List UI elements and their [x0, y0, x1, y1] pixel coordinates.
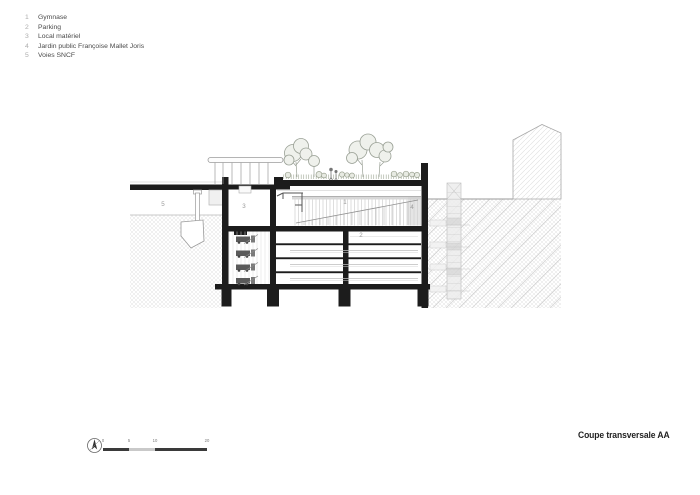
scale-tick: 0 [102, 438, 104, 443]
label-gymnase: 1 [343, 199, 347, 206]
label-parking: 2 [359, 232, 363, 239]
section-drawing: 5 3 1 4 2 [0, 0, 700, 495]
tree-icon [284, 139, 320, 178]
drawing-sheet: 1 Gymnase 2 Parking 3 Local matériel 4 J… [0, 0, 700, 495]
title-block: Coupe transversale AA [578, 430, 672, 440]
label-local-materiel: 3 [242, 203, 246, 210]
scale-tick: 10 [153, 438, 158, 443]
label-jardin: 4 [410, 204, 414, 211]
label-voies-sncf: 5 [161, 201, 165, 208]
scale-bar-segment [155, 448, 207, 451]
scale-tick: 5 [128, 438, 130, 443]
pavilion-pergola [208, 158, 283, 185]
north-arrow-icon [86, 437, 103, 454]
scale-bar-segment [129, 448, 155, 451]
local-materiel-ceiling-hatch [239, 186, 251, 193]
scale-tick: 20 [205, 438, 210, 443]
gym-interior [277, 191, 421, 226]
underdeck-box [209, 190, 223, 205]
tree-icon [347, 134, 394, 177]
neighbor-building-mass [513, 125, 561, 200]
rail-ground-hatch [130, 215, 222, 308]
scale-bar-segment [103, 448, 129, 451]
drawing-title: Coupe transversale AA [578, 430, 670, 440]
roof-garden [283, 134, 421, 180]
rail-deck [130, 182, 222, 190]
scale-bar: 0 5 10 20 [86, 433, 216, 459]
